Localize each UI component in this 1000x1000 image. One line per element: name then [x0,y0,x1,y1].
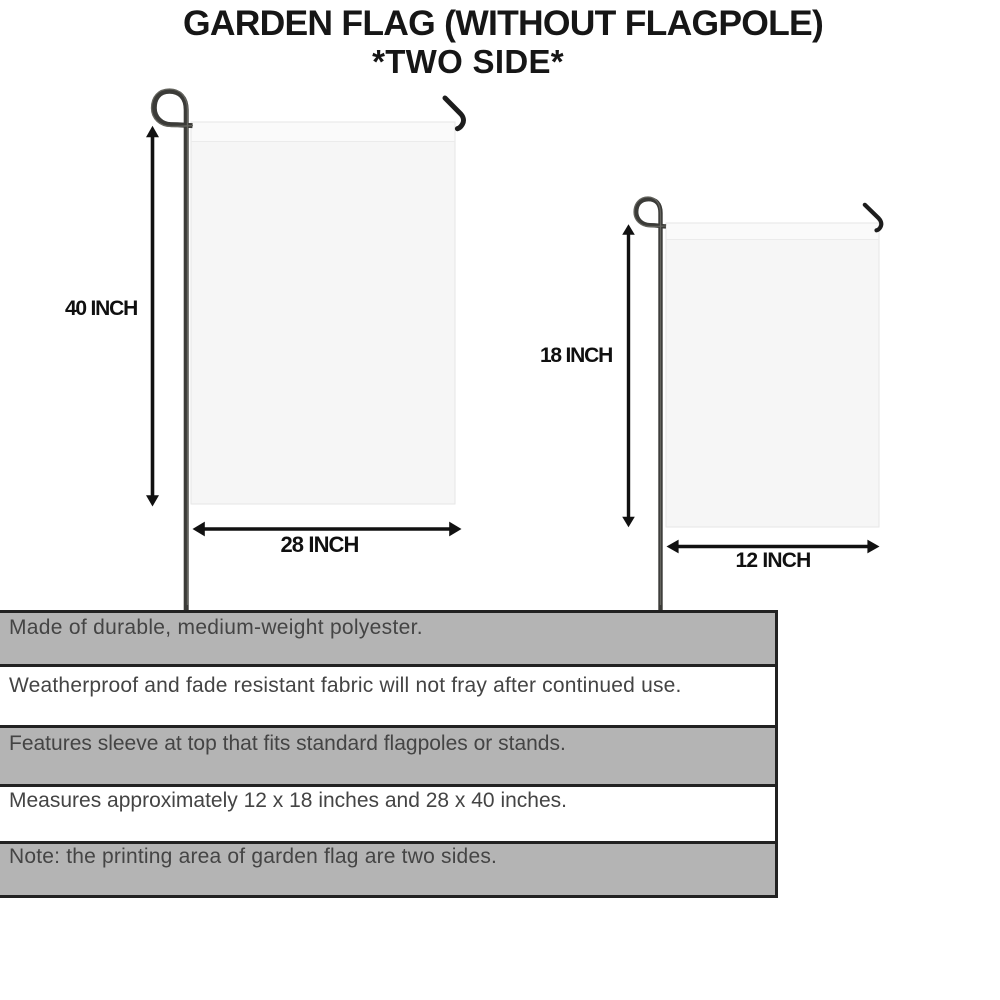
svg-text:40 INCH: 40 INCH [65,297,137,320]
svg-text:28 INCH: 28 INCH [280,532,358,557]
svg-text:12 INCH: 12 INCH [736,549,811,572]
svg-text:18 INCH: 18 INCH [540,344,612,367]
